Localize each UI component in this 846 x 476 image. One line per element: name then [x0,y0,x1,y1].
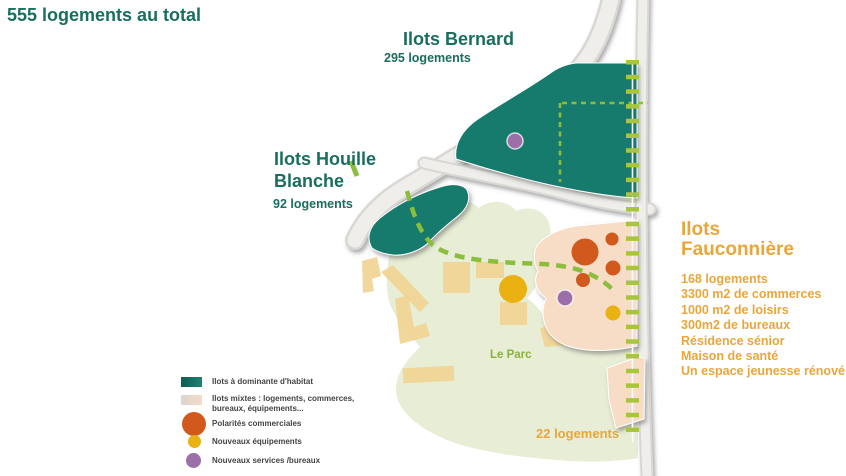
legend-label-services: Nouveaux services /bureaux [212,456,320,466]
building-zigzag-a [362,257,381,293]
building-block-g [500,302,527,325]
fauconniere-panel: Ilots Fauconnière 168 logements 3300 m2 … [681,220,845,380]
equipment-marker-fauconniere [606,306,621,321]
fauconniere-detail: 1000 m2 de loisirs [681,303,845,318]
legend-label-mixte: Ilots mixtes : logements, commerces, bur… [212,394,380,413]
legend-label-equipements: Nouveaux équipements [212,437,302,447]
fauconniere-detail: 3300 m2 de commerces [681,287,845,302]
page-title: 555 logements au total [7,5,201,26]
legend-swatch-habitat [181,377,202,387]
label-south-count: 22 logements [536,426,619,441]
building-block-e [443,262,470,293]
label-fauconniere-name: Ilots Fauconnière [681,220,813,260]
services-marker-fauconniere [557,290,573,306]
equipment-marker-park [499,275,527,303]
building-bar-d [403,366,455,384]
commercial-pole-1 [606,233,619,246]
label-parc: Le Parc [490,349,532,361]
legend-label-commercial: Polarités commerciales [212,419,301,429]
legend: Ilots à dominante d'habitat Ilots mixtes… [178,371,408,471]
building-block-f [476,262,504,278]
commercial-pole-3 [576,273,590,287]
map-infographic: 555 logements au total Ilots Bernard 295… [0,0,846,476]
fauconniere-detail: Un espace jeunesse rénové [681,364,845,379]
legend-swatch-mixte [181,395,202,405]
services-marker-bernard [507,133,523,149]
legend-label-habitat: Ilots à dominante d'habitat [212,377,313,387]
fauconniere-detail: Maison de santé [681,349,845,364]
legend-swatch-equipements [188,435,201,448]
label-bernard-count: 295 logements [384,51,471,65]
legend-swatch-services [186,453,201,468]
fauconniere-detail: 168 logements [681,272,845,287]
commercial-pole-2 [606,261,621,276]
fauconniere-details: 168 logements 3300 m2 de commerces 1000 … [681,272,845,380]
label-bernard-name: Ilots Bernard [403,29,514,50]
fauconniere-detail: 300m2 de bureaux [681,318,845,333]
label-houille-count: 92 logements [273,197,353,211]
commercial-pole-large [572,239,599,266]
fauconniere-detail: Résidence sénior [681,334,845,349]
legend-swatch-commercial [182,412,206,436]
label-houille-name: Ilots Houille Blanche [274,148,406,192]
